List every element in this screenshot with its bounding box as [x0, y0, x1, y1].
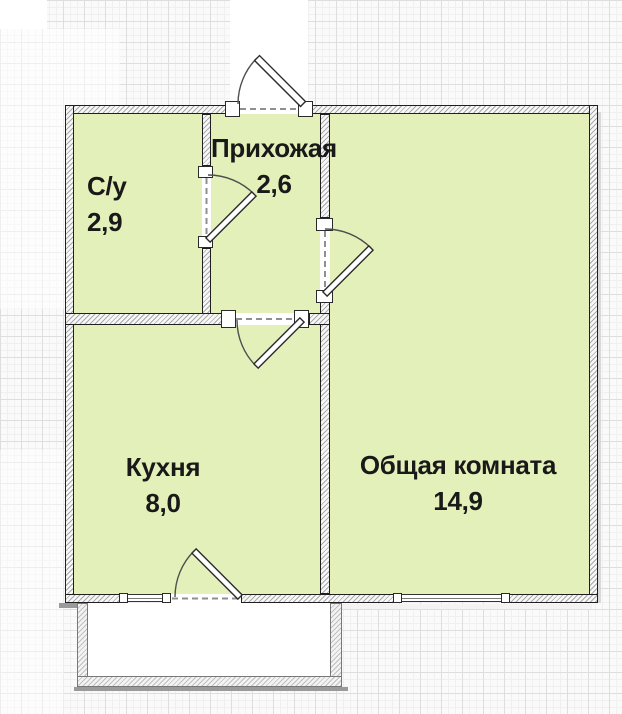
door-swing-clearing [230, 0, 308, 106]
outer-wall-left [65, 105, 74, 603]
outer-wall-bottom-right [508, 594, 598, 603]
balcony-shadow-bottom [74, 687, 348, 691]
kitchen-window-cap-left [119, 593, 128, 603]
partition-hallway-kitchen-stub [309, 313, 330, 325]
partition-bathroom-kitchen [65, 313, 222, 325]
white-tint-overlay-left-lower [0, 450, 64, 714]
living-window-cap-left [393, 593, 402, 603]
room-label-hallway: Прихожая 2,6 [204, 130, 344, 202]
room-name-label: С/у [87, 168, 127, 204]
grid-clear-patch-top-left [0, 0, 47, 29]
entrance-jamb-right [298, 101, 313, 117]
living-door-jamb-bottom [316, 290, 333, 303]
partition-kitchen-living [320, 302, 330, 594]
living-door-jamb-top [316, 218, 333, 231]
room-label-living-room: Общая комната 14,9 [338, 447, 578, 519]
living-room-window [397, 594, 508, 602]
room-label-bathroom: С/у 2,9 [87, 168, 127, 240]
room-name-label: Кухня [93, 449, 233, 485]
wall-shadow-left-of-balcony [59, 603, 78, 608]
balcony-floor [88, 603, 330, 676]
bathroom-door-jamb-bottom [198, 236, 213, 248]
balcony-wall-bottom [77, 676, 342, 687]
room-area-label: 14,9 [338, 483, 578, 519]
room-living-room [330, 114, 589, 594]
floorplan: С/у 2,9 Прихожая 2,6 Кухня 8,0 Общая ком… [0, 0, 622, 714]
room-area-label: 2,6 [204, 166, 344, 202]
wall-light-band-bottom-right [342, 604, 592, 609]
kitchen-window-cap-right [162, 593, 171, 603]
kitchen-door-opening [236, 313, 294, 325]
kitchen-door-jamb-left [221, 310, 236, 328]
room-label-kitchen: Кухня 8,0 [93, 449, 233, 521]
living-window-cap-right [501, 593, 510, 603]
room-area-label: 2,9 [87, 204, 127, 240]
outer-wall-top-right [307, 105, 598, 114]
balcony-wall-left [77, 603, 88, 687]
outer-wall-bottom-middle [241, 594, 397, 603]
kitchen-door-jamb-right [294, 310, 309, 328]
room-area-label: 8,0 [93, 485, 233, 521]
entrance-opening [240, 105, 298, 114]
outer-wall-bottom-left [65, 594, 121, 603]
balcony-door-opening [171, 594, 241, 603]
wall-shadow-right-outer [598, 112, 601, 603]
room-name-label: Прихожая [204, 130, 344, 166]
outer-wall-top-left [65, 105, 231, 114]
room-name-label: Общая комната [338, 447, 578, 483]
outer-wall-right [589, 105, 598, 603]
living-door-opening [320, 231, 330, 290]
balcony-wall-right [330, 603, 342, 687]
entrance-jamb-left [225, 101, 240, 117]
